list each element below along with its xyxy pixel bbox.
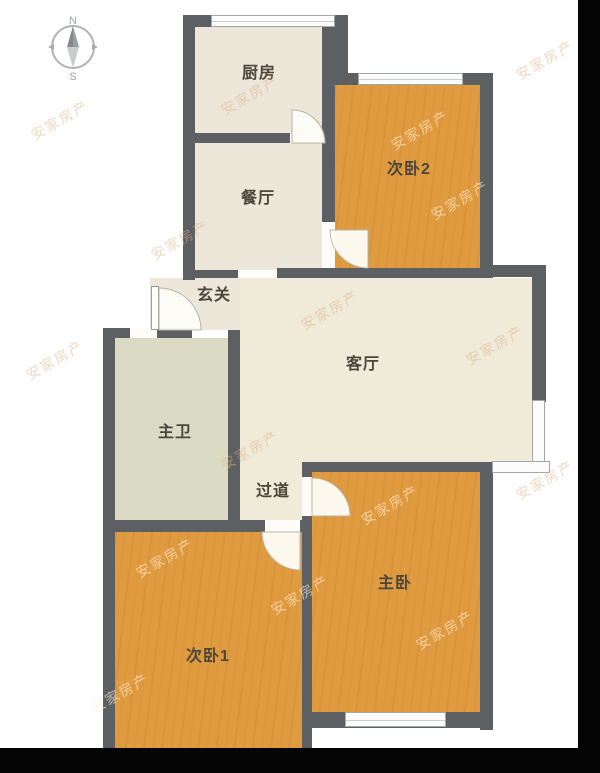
watermark: 安家房产	[22, 335, 87, 384]
room-label-master-bedroom: 主卧	[378, 569, 412, 593]
compass-south-label: S	[69, 71, 76, 82]
wall-master-right	[480, 462, 493, 730]
letterbox-bottom	[0, 748, 600, 773]
wall-living-bay-east	[532, 270, 546, 402]
room-label-corridor: 过道	[256, 477, 290, 501]
wall-dining-bottom-left	[192, 270, 238, 278]
entry-door-leaf	[151, 286, 159, 330]
window-bedroom2	[358, 73, 463, 85]
watermark: 安家房产	[512, 35, 577, 84]
window-living-bay	[532, 400, 545, 465]
compass-west-tick	[48, 44, 54, 50]
compass-needle-north	[67, 26, 73, 47]
window-mullion	[346, 720, 445, 721]
room-label-living: 客厅	[346, 350, 380, 374]
wall-left-lower	[103, 328, 115, 748]
window-living-sill	[492, 461, 550, 473]
wall-master-top	[302, 462, 493, 472]
wall-bedroom2-bottom	[322, 268, 493, 278]
door-gap-bedroom1	[265, 520, 300, 532]
watermark: 安家房产	[27, 95, 92, 144]
room-label-kitchen: 厨房	[242, 59, 276, 83]
door-gap-kitchen	[290, 133, 322, 143]
window-kitchen	[211, 15, 335, 27]
room-floor-living	[240, 278, 532, 465]
room-label-dining: 餐厅	[241, 184, 275, 208]
compass-needle-north-right	[73, 26, 79, 47]
room-label-bedroom2: 次卧2	[387, 155, 431, 179]
compass-east-tick	[92, 44, 98, 50]
room-floor-bedroom1	[115, 532, 302, 748]
room-label-bedroom1: 次卧1	[186, 642, 230, 666]
window-mullion	[359, 79, 462, 80]
door-gap-bedroom2	[322, 222, 335, 268]
compass-north-label: N	[69, 15, 77, 27]
room-label-bathroom: 主卫	[158, 418, 192, 442]
wall-dining-bottom-right	[277, 268, 322, 278]
compass-needle-south	[67, 47, 79, 68]
wall-kitchen-dining-right	[322, 27, 335, 222]
wall-bathroom-right	[228, 330, 240, 525]
letterbox-right	[578, 0, 600, 773]
door-gap-master-bedroom	[302, 477, 312, 516]
room-label-entry: 玄关	[197, 281, 231, 305]
floorplan-image: N S 厨房 餐厅	[0, 0, 600, 773]
window-master-bedroom	[345, 712, 446, 727]
window-mullion	[212, 21, 334, 22]
compass-icon: N S	[40, 12, 106, 82]
wall-left-upper	[183, 15, 195, 280]
wall-bedroom2-right	[480, 73, 493, 277]
